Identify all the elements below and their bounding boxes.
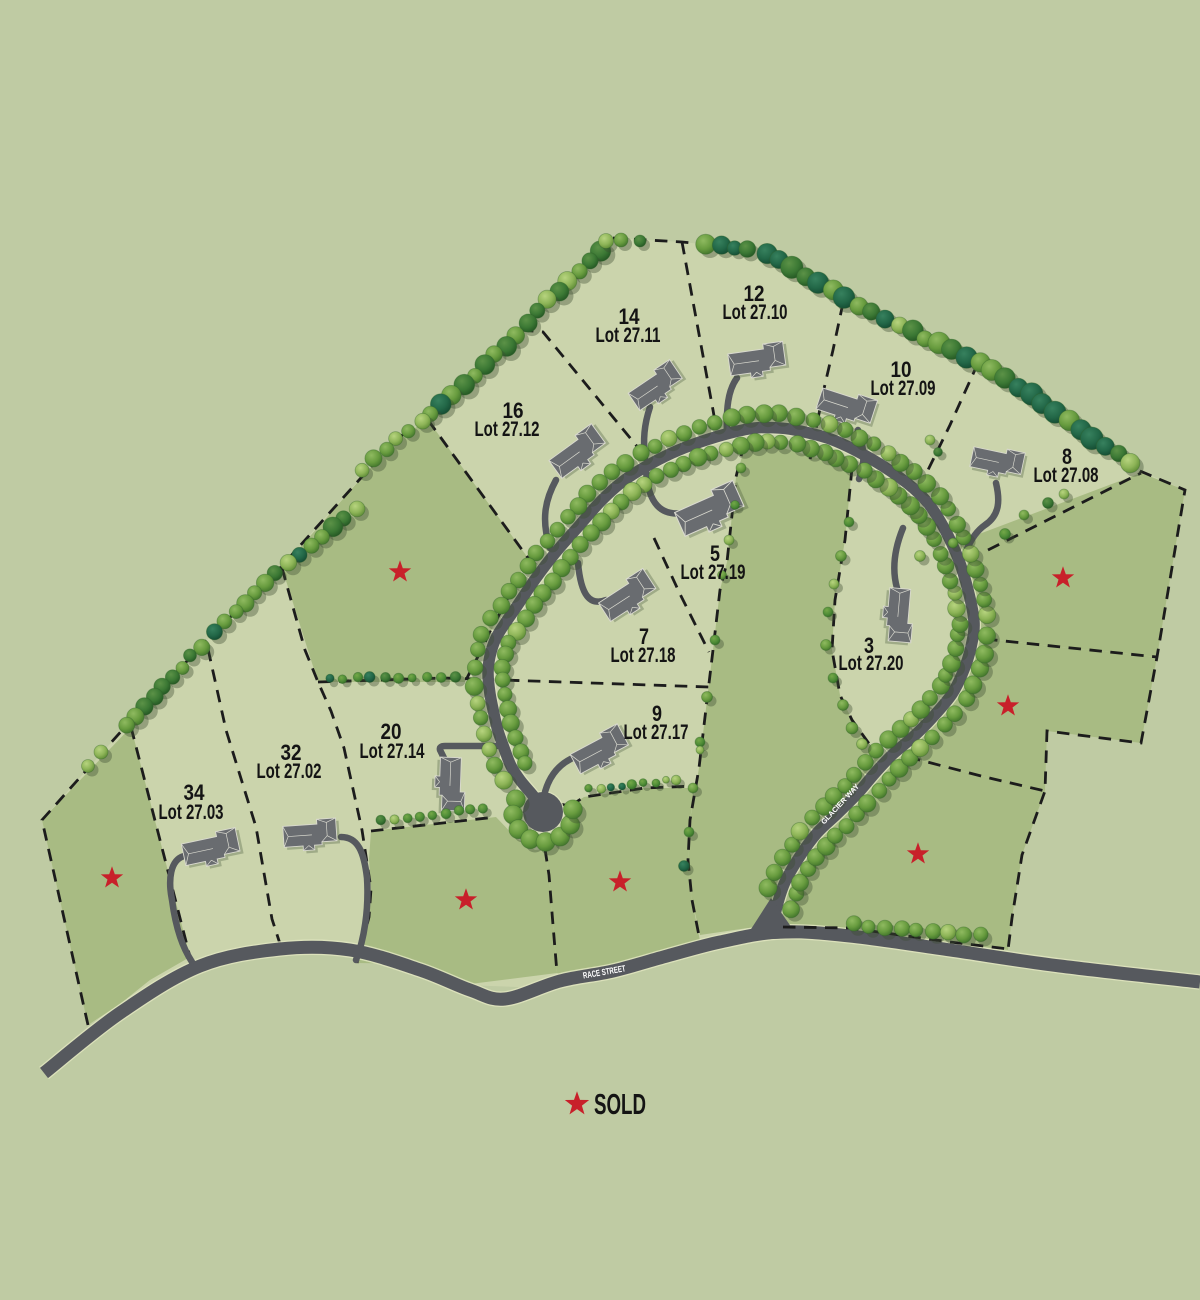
svg-text:Lot 27.11: Lot 27.11 bbox=[596, 324, 661, 347]
svg-text:Lot 27.03: Lot 27.03 bbox=[159, 801, 224, 824]
svg-text:Lot 27.12: Lot 27.12 bbox=[475, 418, 540, 441]
svg-text:Lot 27.02: Lot 27.02 bbox=[257, 760, 322, 783]
svg-text:Lot 27.08: Lot 27.08 bbox=[1034, 464, 1099, 487]
svg-text:Lot 27.14: Lot 27.14 bbox=[360, 740, 425, 763]
svg-text:Lot 27.20: Lot 27.20 bbox=[839, 652, 904, 675]
svg-text:Lot 27.17: Lot 27.17 bbox=[624, 721, 689, 744]
svg-text:Lot 27.10: Lot 27.10 bbox=[723, 301, 788, 324]
svg-text:Lot 27.19: Lot 27.19 bbox=[681, 561, 746, 584]
svg-text:SOLD: SOLD bbox=[594, 1089, 646, 1121]
svg-text:Lot 27.18: Lot 27.18 bbox=[611, 644, 676, 667]
svg-text:Lot 27.09: Lot 27.09 bbox=[871, 377, 936, 400]
